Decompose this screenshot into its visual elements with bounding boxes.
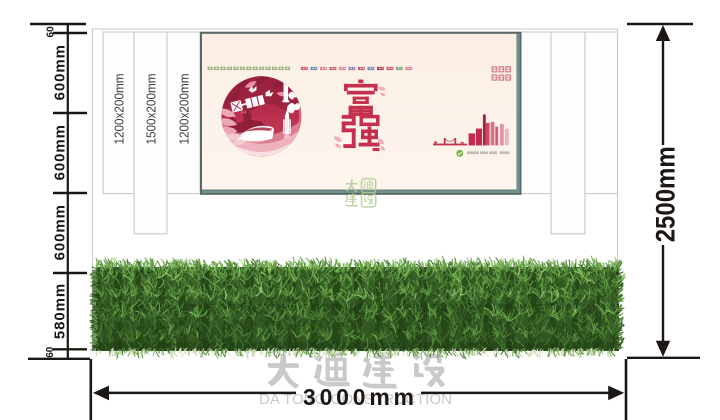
svg-text:580mm: 580mm <box>51 283 68 339</box>
svg-text:2500mm: 2500mm <box>651 146 681 242</box>
svg-text:600mm: 600mm <box>51 124 68 180</box>
svg-text:600mm: 600mm <box>51 204 68 260</box>
svg-text:60: 60 <box>45 26 56 38</box>
svg-text:600mm: 600mm <box>51 44 68 100</box>
svg-text:1200x200mm: 1200x200mm <box>177 74 192 145</box>
svg-text:1200x200mm: 1200x200mm <box>112 74 127 145</box>
svg-text:1500x200mm: 1500x200mm <box>144 74 159 145</box>
svg-text:3000mm: 3000mm <box>303 384 414 410</box>
svg-text:60: 60 <box>45 346 56 358</box>
